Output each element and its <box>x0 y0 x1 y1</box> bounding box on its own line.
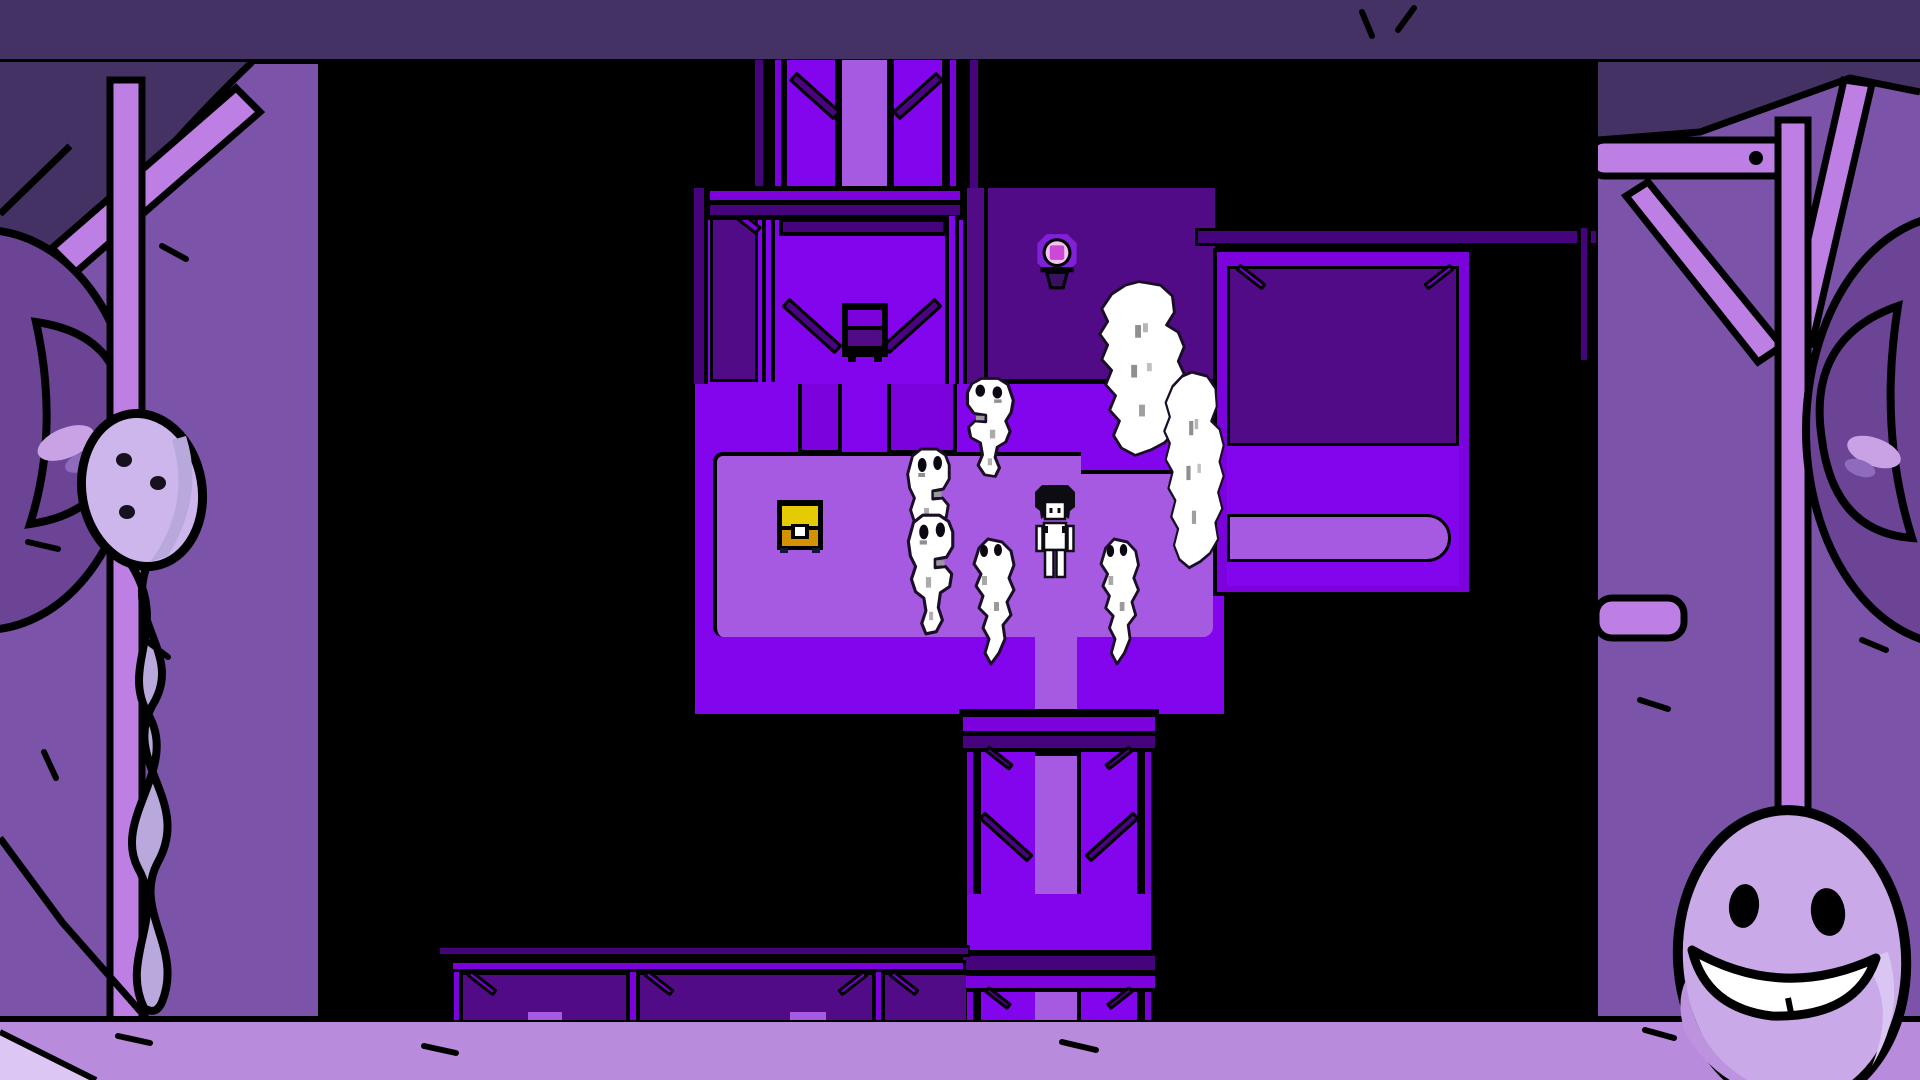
top-bridge-strip-right <box>966 60 982 190</box>
bridge-panel-left <box>981 752 1035 894</box>
platform-rail <box>450 960 966 972</box>
ghost-left-lower <box>898 512 960 638</box>
brace-icon <box>1423 263 1455 290</box>
top-bridge-panel-left <box>787 60 839 188</box>
right-beam-bolt <box>1749 151 1763 165</box>
platform-row-line-fill <box>440 948 968 954</box>
bridge-panel-right <box>1081 752 1137 894</box>
top-bridge-pillar-left <box>771 60 785 190</box>
right-beam-fragment <box>1596 598 1684 638</box>
top-wall-band <box>0 0 1920 62</box>
right-pole <box>1778 120 1808 926</box>
egg-ghost-tooth-line <box>1788 998 1792 1018</box>
chest-lock <box>795 527 805 536</box>
brace-icon <box>789 71 842 120</box>
brace-icon <box>643 969 675 996</box>
right-room-stage <box>1227 266 1459 446</box>
brace-icon <box>1084 811 1140 863</box>
brace-icon <box>1235 263 1267 290</box>
lintel-rail <box>710 191 960 200</box>
balloon-ghost-dot2 <box>150 476 166 490</box>
brace-icon <box>466 969 498 996</box>
ghost-top <box>960 376 1024 480</box>
wall-stub-left <box>798 384 842 454</box>
brace-icon <box>978 811 1034 863</box>
platform-post <box>450 972 463 1020</box>
glowing-lamp <box>1034 232 1080 294</box>
right-room-top-stub <box>1577 228 1591 360</box>
left-wall-pillar <box>762 202 775 382</box>
right-wall-panel <box>963 188 988 384</box>
ghost-bottom-left <box>958 536 1022 668</box>
balloon-ghost-dot3 <box>119 505 135 519</box>
platform-post <box>626 972 640 1020</box>
balloon-ghost-dot1 <box>116 453 132 467</box>
platform-panel <box>640 972 872 1020</box>
brace-icon <box>888 969 920 996</box>
bridge-platform <box>963 894 1155 950</box>
right-room <box>1213 248 1473 596</box>
right-room-runner <box>1227 514 1451 562</box>
top-bridge-strip-left <box>751 60 767 190</box>
wall-sign-leg <box>874 357 882 362</box>
platform-post <box>872 972 885 1020</box>
game-scene <box>0 0 1920 1080</box>
bridge-band-2 <box>963 956 1155 970</box>
wall-sign-pane-top <box>848 310 882 326</box>
platform-doormat <box>528 1012 562 1020</box>
brace-icon <box>892 71 945 120</box>
brace-icon <box>837 969 869 996</box>
wall-stub-right <box>887 384 957 454</box>
right-beam <box>1590 140 1795 176</box>
chest-foot <box>780 548 788 553</box>
ghost-cloud-right <box>1156 368 1232 582</box>
chest-foot <box>812 548 820 553</box>
truss-band <box>783 222 943 232</box>
platform-panel <box>885 972 966 1020</box>
bottom-bridge-rail <box>963 717 1155 731</box>
top-bridge-panel-right <box>890 60 942 188</box>
bridge-rail-2 <box>963 976 1155 988</box>
chest-lid <box>782 506 818 526</box>
wall-sign-leg <box>848 357 856 362</box>
right-wall-pillar <box>945 216 959 384</box>
bridge-post-right-2 <box>1141 992 1155 1020</box>
wall-sign-pane-bottom <box>848 330 882 346</box>
carpet <box>713 452 1081 637</box>
game-viewport[interactable] <box>318 60 1598 1020</box>
player-character <box>1032 482 1078 582</box>
ghost-bottom-right <box>1086 536 1146 668</box>
left-wall-panel <box>710 202 758 382</box>
top-bridge-pillar-right <box>946 60 960 190</box>
right-room-top-beam <box>1195 228 1598 246</box>
bridge-panel-right-2 <box>1081 992 1137 1020</box>
lintel-band <box>710 205 960 215</box>
border-floor <box>0 1020 1920 1080</box>
bridge-post-left <box>963 752 977 894</box>
platform-doormat <box>790 1012 826 1020</box>
bridge-panel-left-2 <box>981 992 1035 1020</box>
bridge-post-right <box>1141 752 1155 894</box>
